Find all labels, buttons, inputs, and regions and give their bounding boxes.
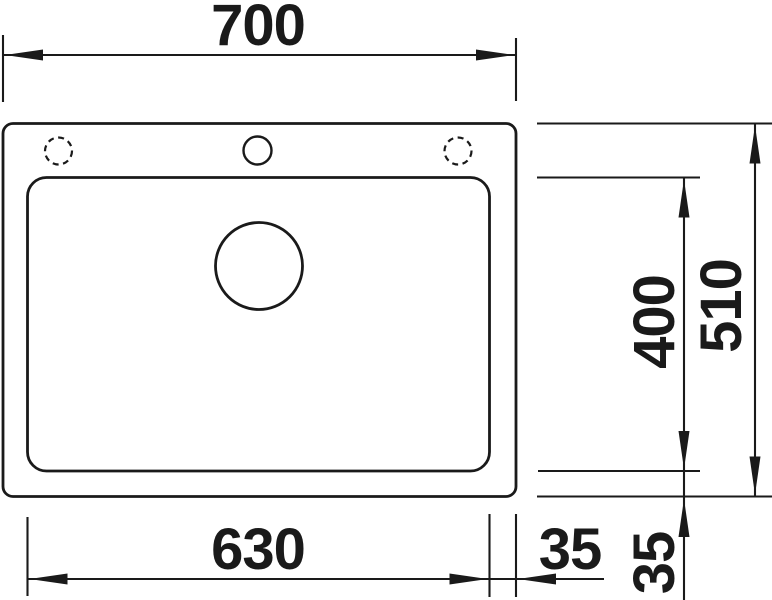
arrowhead-up-icon [679, 180, 690, 218]
tap-hole-center [244, 137, 272, 165]
arrowhead-up-icon [679, 499, 690, 537]
arrowhead-left-icon [30, 574, 68, 585]
dim-label-35-bottom: 35 [622, 532, 687, 595]
dimension-bowl-width: 630 [28, 514, 605, 597]
tap-hole-right-optional [445, 138, 472, 165]
tap-hole-left-optional [45, 138, 72, 165]
sink-dimension-drawing-page: 700 510 400 630 [0, 0, 772, 600]
arrowhead-up-icon [750, 126, 761, 164]
arrowhead-right-icon [476, 50, 514, 61]
sink-outline-group [3, 124, 516, 497]
arrowhead-down-icon [679, 431, 690, 469]
dimension-right-offset: 35 [518, 517, 601, 585]
arrowhead-right-icon [450, 574, 488, 585]
dimension-overall-width: 700 [3, 0, 516, 102]
dim-label-630: 630 [211, 517, 305, 582]
arrowhead-down-icon [750, 457, 761, 495]
drain-hole [216, 223, 303, 310]
arrowhead-left-icon [5, 50, 43, 61]
dim-label-700: 700 [211, 0, 305, 58]
dim-label-35-right: 35 [539, 517, 602, 582]
dimension-bottom-offset: 35 [622, 499, 690, 594]
sink-technical-drawing: 700 510 400 630 [0, 0, 772, 600]
dim-label-510: 510 [689, 259, 754, 353]
dim-label-400: 400 [622, 275, 687, 369]
